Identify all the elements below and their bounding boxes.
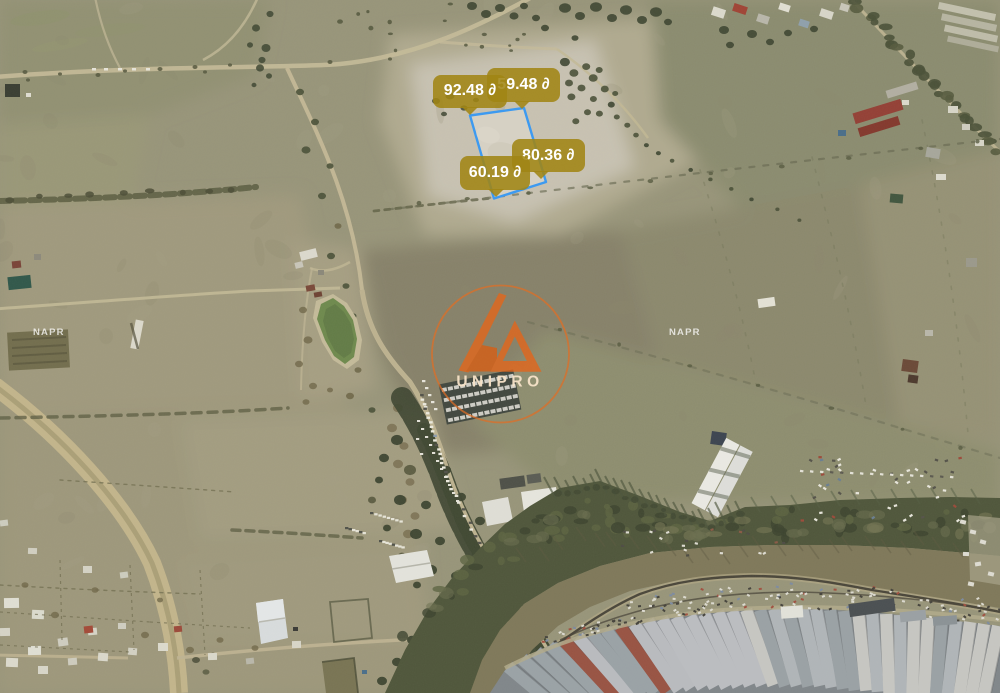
svg-text:UNIPRO: UNIPRO [456, 374, 543, 391]
svg-text:NAPR: NAPR [669, 327, 701, 338]
svg-text:NAPR: NAPR [33, 327, 65, 338]
